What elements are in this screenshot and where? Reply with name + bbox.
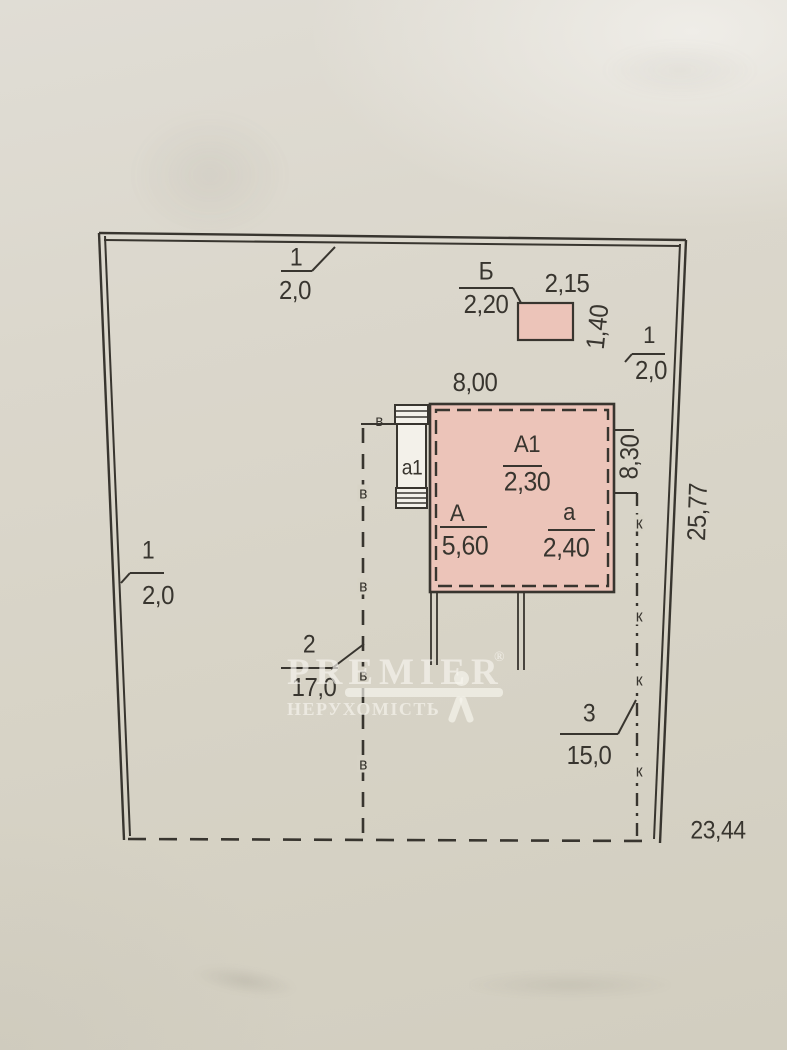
section-right-length: 2,0 [635,357,667,383]
building-b-outline [518,303,573,340]
fence-mark-v: в [357,578,369,595]
label-top-leader [312,247,335,271]
fence3-number: 3 [583,702,595,727]
fence-mark-k: к [634,672,644,689]
boundary-right-outer [660,240,686,843]
annex-steps-top [395,405,428,424]
fence-mark-v: в [357,756,369,773]
label-b-leader [513,288,521,303]
building-b-height: 1,40 [582,303,613,350]
building-width-dim: 8,00 [453,369,498,395]
boundary-top-inner [104,240,680,246]
room-A-value: 5,60 [442,533,489,560]
boundary-top-outer [99,233,686,240]
fence2-length: 17,0 [292,674,337,700]
fence-mark-k: к [634,515,644,532]
label-fence3-leader [618,700,636,734]
fence-mark-v: в [357,667,369,684]
section-left-length: 2,0 [142,582,174,608]
building-b-top: 2,15 [545,270,590,296]
boundary-bottom-dashed [128,839,651,841]
section-top-number: 1 [290,246,302,271]
building-depth-dim: 8,30 [615,434,643,480]
section-right-number: 1 [643,324,655,348]
fence3-length: 15,0 [567,742,612,768]
section-top-length: 2,0 [279,277,311,303]
annex-a1-label: а1 [402,458,423,479]
plot-bottom-dim: 23,44 [690,819,745,844]
fence2-number: 2 [303,633,315,658]
scanned-site-plan: 1 2,0 Б 2,20 2,15 1,40 1 2,0 8,00 8,30 2… [0,0,787,1050]
plot-right-dim: 25,77 [683,483,711,541]
fence-mark-k: к [634,763,644,780]
room-A-letter: А [450,502,464,526]
fence-mark-v: в [375,414,382,430]
room-a1-letter: А1 [514,433,540,457]
building-b-width: 2,20 [464,291,509,317]
room-a1-value: 2,30 [504,469,551,496]
section-left-number: 1 [142,539,154,564]
boundary-left-inner [105,236,130,836]
fence-mark-v: в [357,485,369,502]
room-a-letter: а [563,501,575,525]
label-left-leader [121,573,130,583]
boundary-right-inner [654,244,680,839]
boundary-left-outer [99,233,124,840]
fence-mark-k: к [634,608,644,625]
label-right-leader [625,354,632,362]
plan-linework [0,0,787,1050]
building-b-letter: Б [479,260,494,285]
room-a-value: 2,40 [543,535,590,562]
